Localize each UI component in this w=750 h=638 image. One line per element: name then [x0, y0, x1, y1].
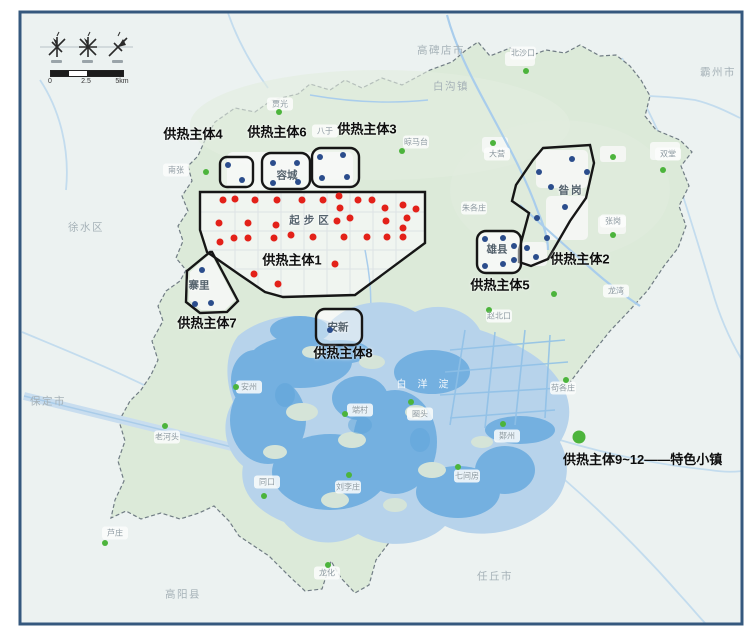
scale-bar-segment: [87, 71, 123, 76]
base-map: [0, 0, 750, 638]
scale-bar-track: [50, 70, 124, 77]
scale-label-mid: 2.5: [81, 78, 91, 85]
legend-green-dot: [573, 431, 586, 444]
entity-8-outline: [316, 309, 362, 345]
entity-4-outline: [220, 157, 253, 187]
scale-label-0: 0: [48, 78, 52, 85]
scale-bar-segment: [69, 71, 87, 76]
scale-bar-segment: [51, 71, 69, 76]
entity-6-outline: [262, 153, 310, 189]
entity-3-outline: [312, 148, 359, 187]
map-stage: 北沙口贾光八于晾马台南张大营双堂朱各庄张岗龙湾赵北口苟各庄鄚州七间房圈头刘李庄同…: [0, 0, 750, 638]
entity-5-outline: [477, 231, 521, 273]
legend-label: 供热主体9~12——特色小镇: [563, 449, 722, 468]
scale-bar: 0 2.5 5km: [50, 70, 130, 90]
scale-label-max: 5km: [115, 78, 128, 85]
